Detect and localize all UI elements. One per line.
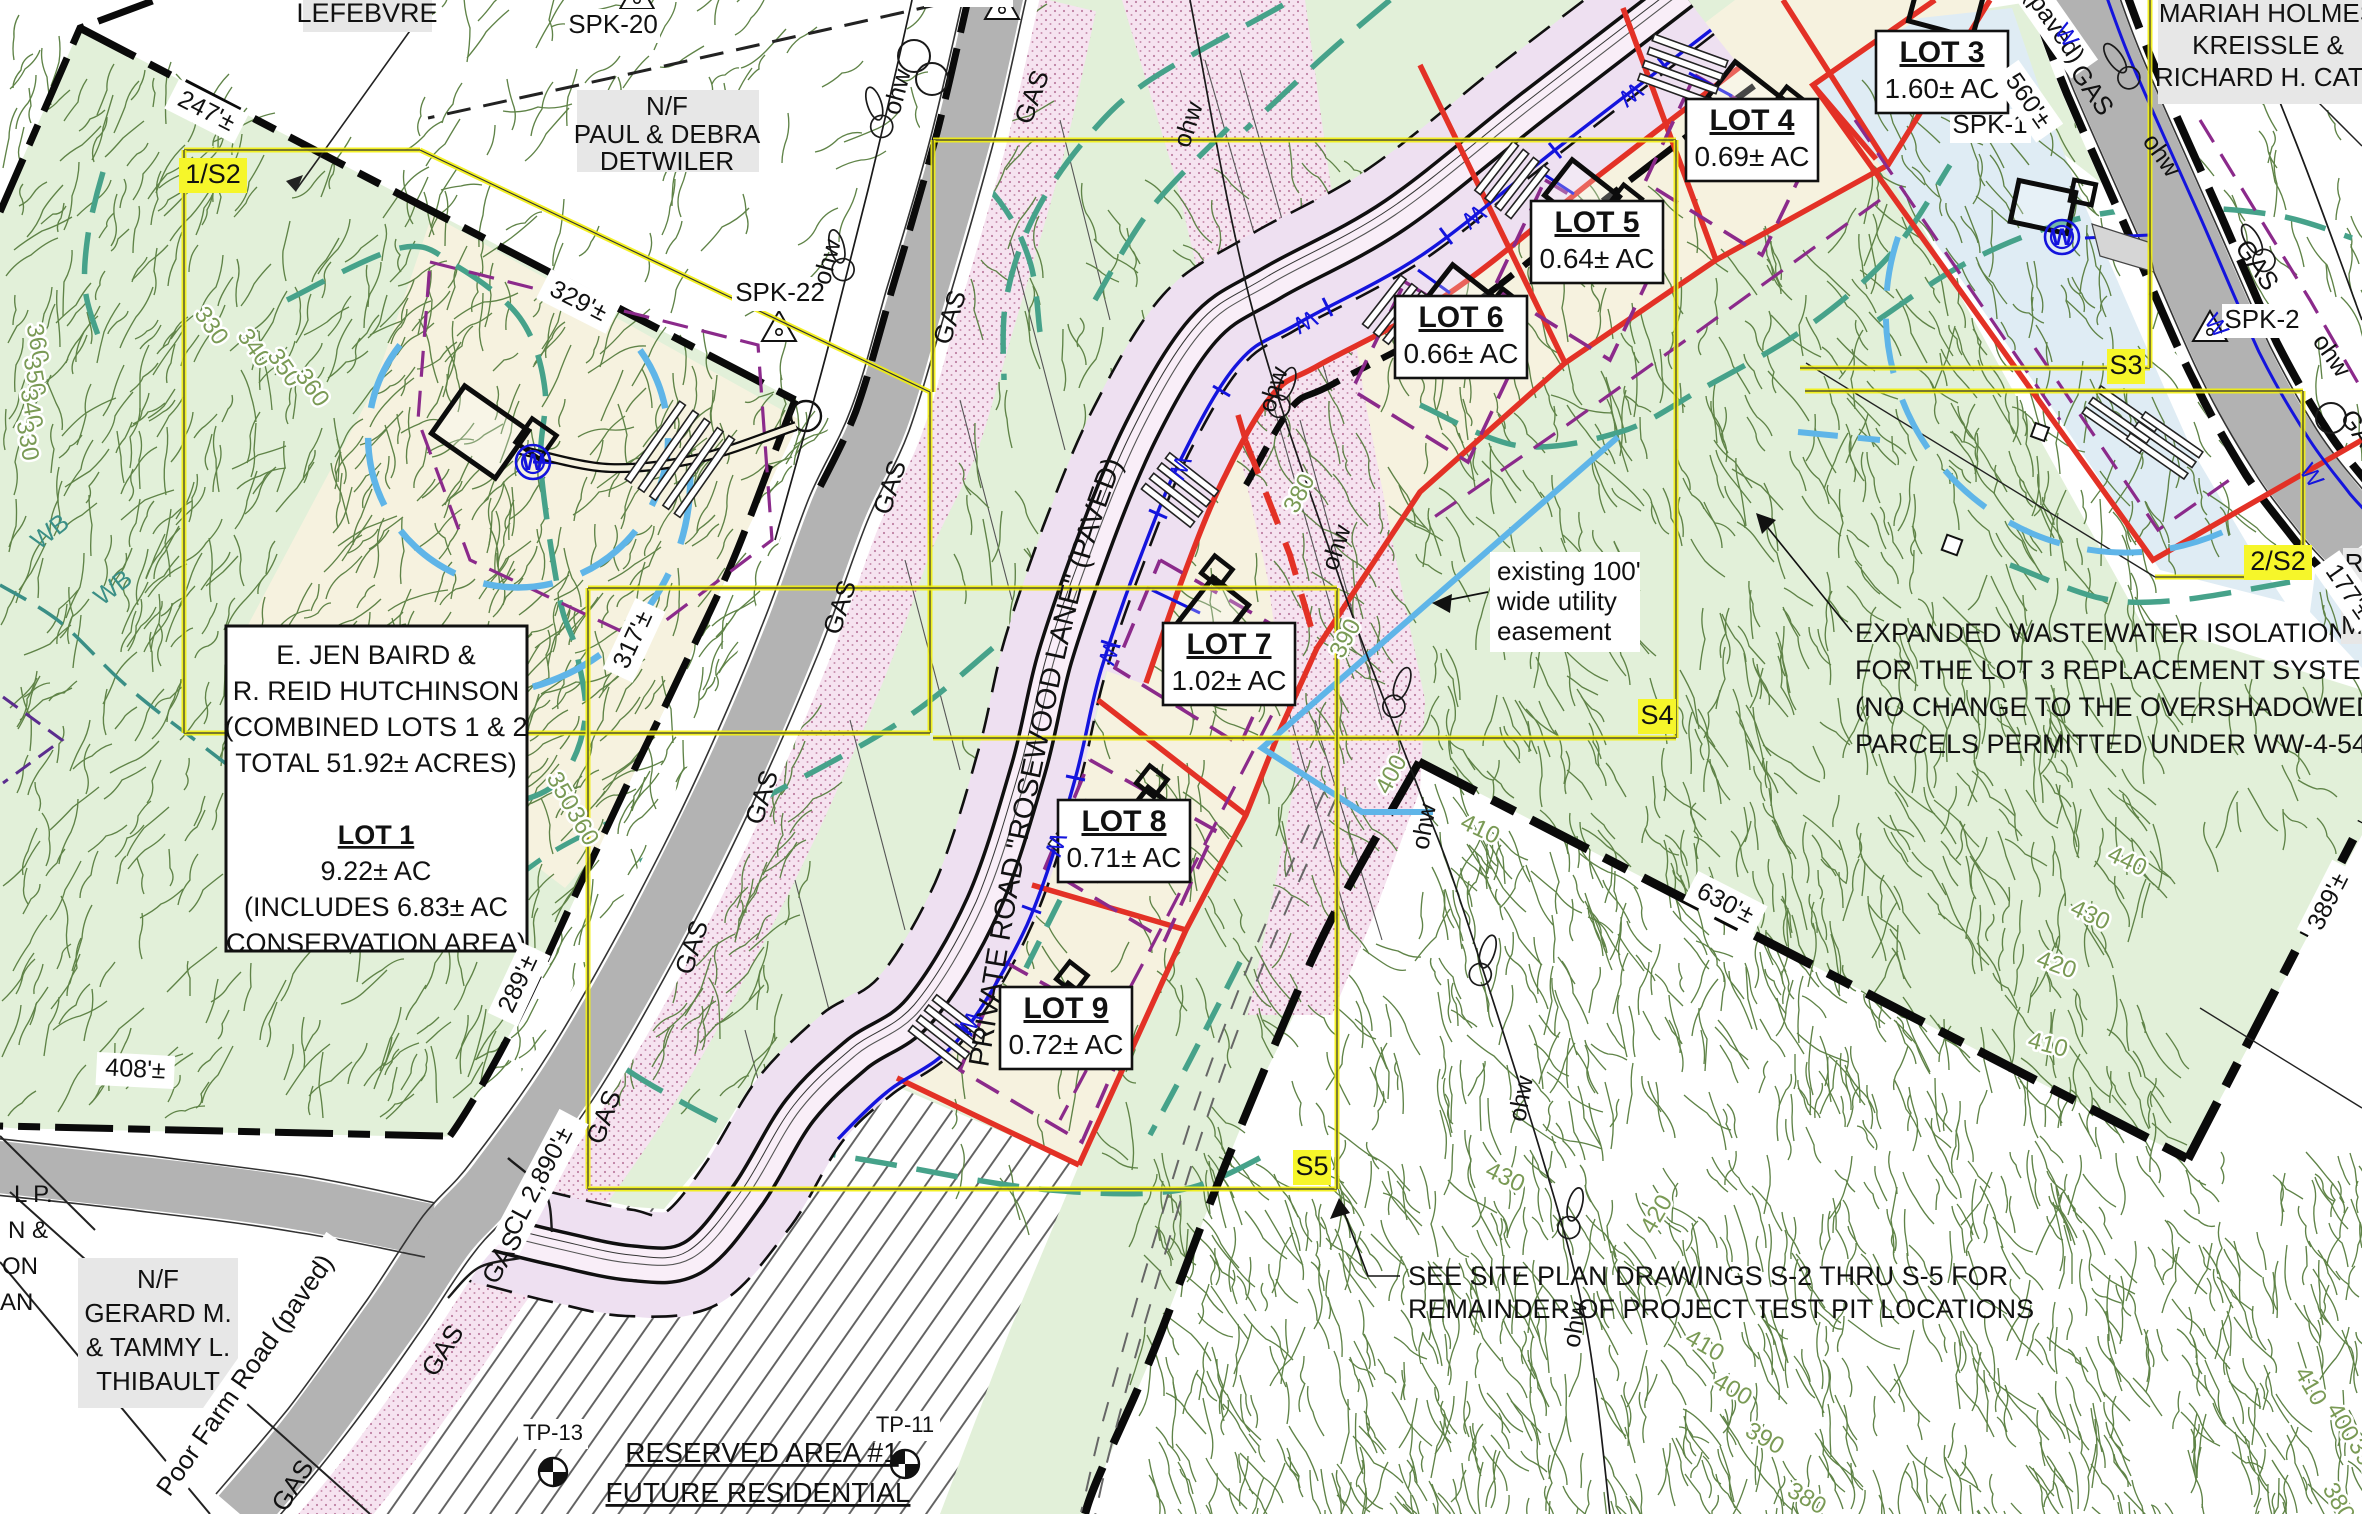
svg-text:easement: easement xyxy=(1497,616,1612,646)
svg-text:0.64± AC: 0.64± AC xyxy=(1540,243,1655,274)
svg-text:N &: N & xyxy=(8,1217,48,1244)
svg-text:S5: S5 xyxy=(1295,1151,1328,1181)
svg-text:LOT 8: LOT 8 xyxy=(1081,805,1166,838)
svg-text:1/S2: 1/S2 xyxy=(185,159,241,189)
svg-text:N/F: N/F xyxy=(137,1264,179,1294)
svg-text:ON: ON xyxy=(2,1253,38,1280)
svg-text:(COMBINED LOTS 1 & 2: (COMBINED LOTS 1 & 2 xyxy=(224,712,527,742)
svg-text:408'±: 408'± xyxy=(105,1053,167,1084)
svg-text:(NO CHANGE TO THE OVERSHADOWED: (NO CHANGE TO THE OVERSHADOWED xyxy=(1855,692,2362,722)
svg-text:S3: S3 xyxy=(2109,350,2142,380)
svg-text:PAUL & DEBRA: PAUL & DEBRA xyxy=(574,119,761,149)
svg-text:FOR THE LOT 3 REPLACEMENT SYST: FOR THE LOT 3 REPLACEMENT SYSTEM xyxy=(1855,655,2362,685)
svg-text:LOT 4: LOT 4 xyxy=(1709,104,1794,137)
svg-text:LEFEBVRE: LEFEBVRE xyxy=(296,0,437,28)
svg-text:0.66± AC: 0.66± AC xyxy=(1404,338,1519,369)
svg-text:LOT 3: LOT 3 xyxy=(1899,36,1984,69)
svg-text:TOTAL 51.92± ACRES): TOTAL 51.92± ACRES) xyxy=(235,748,516,778)
svg-text:1.02± AC: 1.02± AC xyxy=(1172,665,1287,696)
svg-text:SPK-25: SPK-25 xyxy=(927,0,1010,4)
svg-text:S4: S4 xyxy=(1640,700,1673,730)
svg-text:RICHARD H. CATE: RICHARD H. CATE xyxy=(2155,62,2362,92)
svg-text:KREISSLE &: KREISSLE & xyxy=(2192,30,2344,60)
svg-text:& TAMMY L.: & TAMMY L. xyxy=(86,1332,231,1362)
svg-text:wide utility: wide utility xyxy=(1496,586,1617,616)
svg-text:TP-13: TP-13 xyxy=(523,1420,583,1445)
svg-text:THIBAULT: THIBAULT xyxy=(96,1366,220,1396)
svg-text:AN: AN xyxy=(0,1289,33,1316)
svg-text:GERARD M.: GERARD M. xyxy=(84,1298,231,1328)
svg-text:SPK-2: SPK-2 xyxy=(2224,304,2299,334)
svg-text:LOT 7: LOT 7 xyxy=(1186,628,1271,661)
svg-text:0.72± AC: 0.72± AC xyxy=(1009,1029,1124,1060)
svg-text:1.60± AC: 1.60± AC xyxy=(1885,73,2000,104)
svg-text:0.71± AC: 0.71± AC xyxy=(1067,842,1182,873)
svg-text:LOT 6: LOT 6 xyxy=(1418,301,1503,334)
svg-text:TP-11: TP-11 xyxy=(876,1412,934,1437)
svg-text:N/F: N/F xyxy=(646,91,688,121)
svg-text:E. JEN BAIRD &: E. JEN BAIRD & xyxy=(276,640,476,670)
svg-text:SPK-20: SPK-20 xyxy=(568,9,658,39)
svg-text:MARIAH HOLMES: MARIAH HOLMES xyxy=(2159,0,2362,28)
svg-text:LOT 1: LOT 1 xyxy=(338,820,415,850)
svg-text:(INCLUDES 6.83± AC: (INCLUDES 6.83± AC xyxy=(244,892,508,922)
svg-text:REMAINDER OF PROJECT TEST PIT: REMAINDER OF PROJECT TEST PIT LOCATIONS xyxy=(1408,1294,2034,1324)
svg-text:R. REID HUTCHINSON: R. REID HUTCHINSON xyxy=(233,676,520,706)
svg-text:existing 100': existing 100' xyxy=(1497,556,1641,586)
svg-text:SEE SITE PLAN DRAWINGS S-2 THR: SEE SITE PLAN DRAWINGS S-2 THRU S-5 FOR xyxy=(1408,1261,2008,1291)
svg-text:EXPANDED WASTEWATER ISOLATION: EXPANDED WASTEWATER ISOLATION ZONE xyxy=(1855,618,2362,648)
svg-text:LOT 5: LOT 5 xyxy=(1554,206,1639,239)
svg-text:DETWILER: DETWILER xyxy=(600,146,734,176)
svg-text:RESERVED AREA #1: RESERVED AREA #1 xyxy=(625,1437,898,1468)
svg-text:PARCELS PERMITTED UNDER WW-4-5: PARCELS PERMITTED UNDER WW-4-5428) xyxy=(1855,729,2362,759)
svg-text:0.69± AC: 0.69± AC xyxy=(1695,141,1810,172)
svg-text:CONSERVATION AREA): CONSERVATION AREA) xyxy=(226,928,526,958)
svg-text:FUTURE RESIDENTIAL: FUTURE RESIDENTIAL xyxy=(606,1477,911,1508)
svg-text:9.22± AC: 9.22± AC xyxy=(321,856,432,886)
svg-text:W: W xyxy=(2051,224,2074,251)
svg-text:L P.: L P. xyxy=(14,1181,53,1208)
svg-text:LOT 9: LOT 9 xyxy=(1023,992,1108,1025)
svg-text:2/S2: 2/S2 xyxy=(2250,546,2306,576)
svg-text:W: W xyxy=(522,449,545,476)
